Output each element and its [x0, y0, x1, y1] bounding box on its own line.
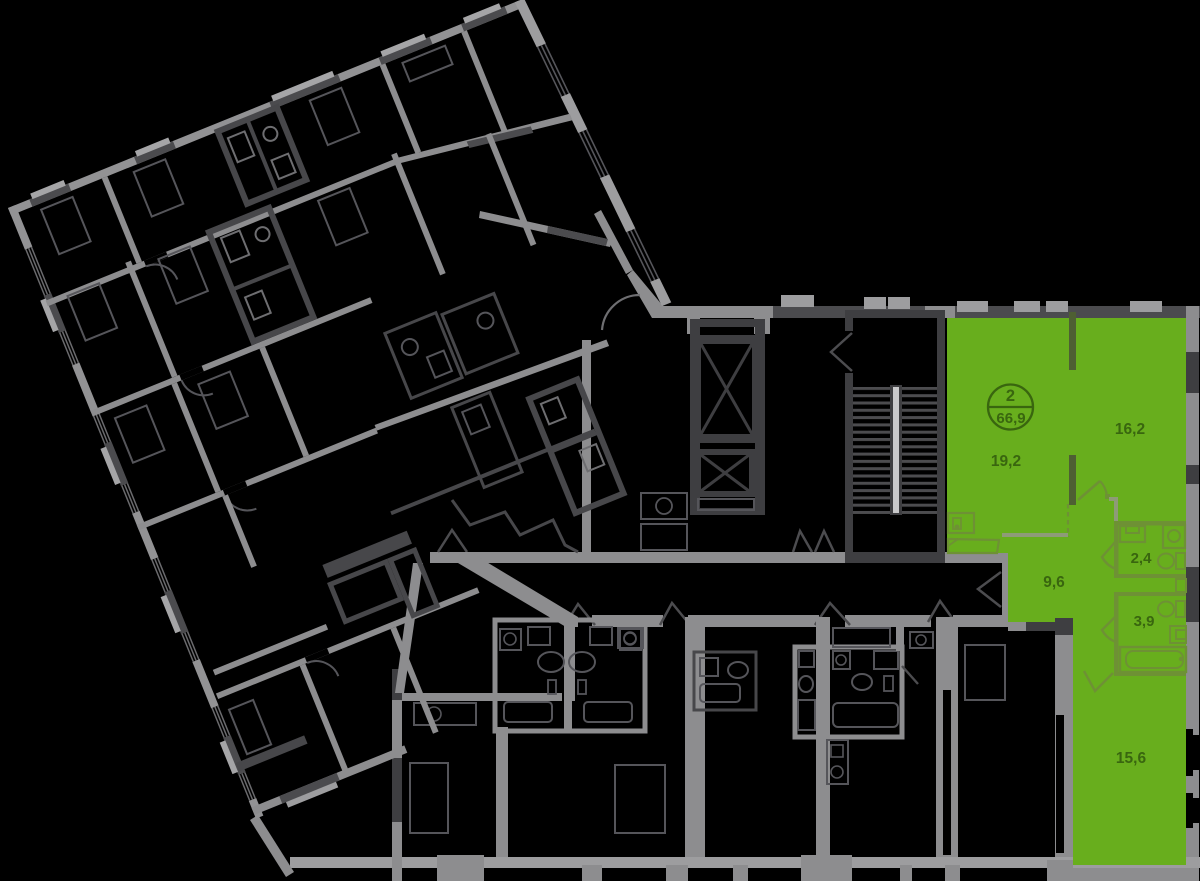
svg-text:3,9: 3,9	[1134, 613, 1155, 630]
svg-text:2: 2	[1006, 387, 1015, 405]
svg-text:19,2: 19,2	[991, 453, 1021, 470]
svg-text:15,6: 15,6	[1116, 750, 1147, 767]
svg-text:9,6: 9,6	[1043, 574, 1065, 591]
svg-text:16,2: 16,2	[1115, 421, 1145, 438]
svg-text:66,9: 66,9	[996, 410, 1025, 427]
svg-text:2,4: 2,4	[1131, 550, 1153, 567]
